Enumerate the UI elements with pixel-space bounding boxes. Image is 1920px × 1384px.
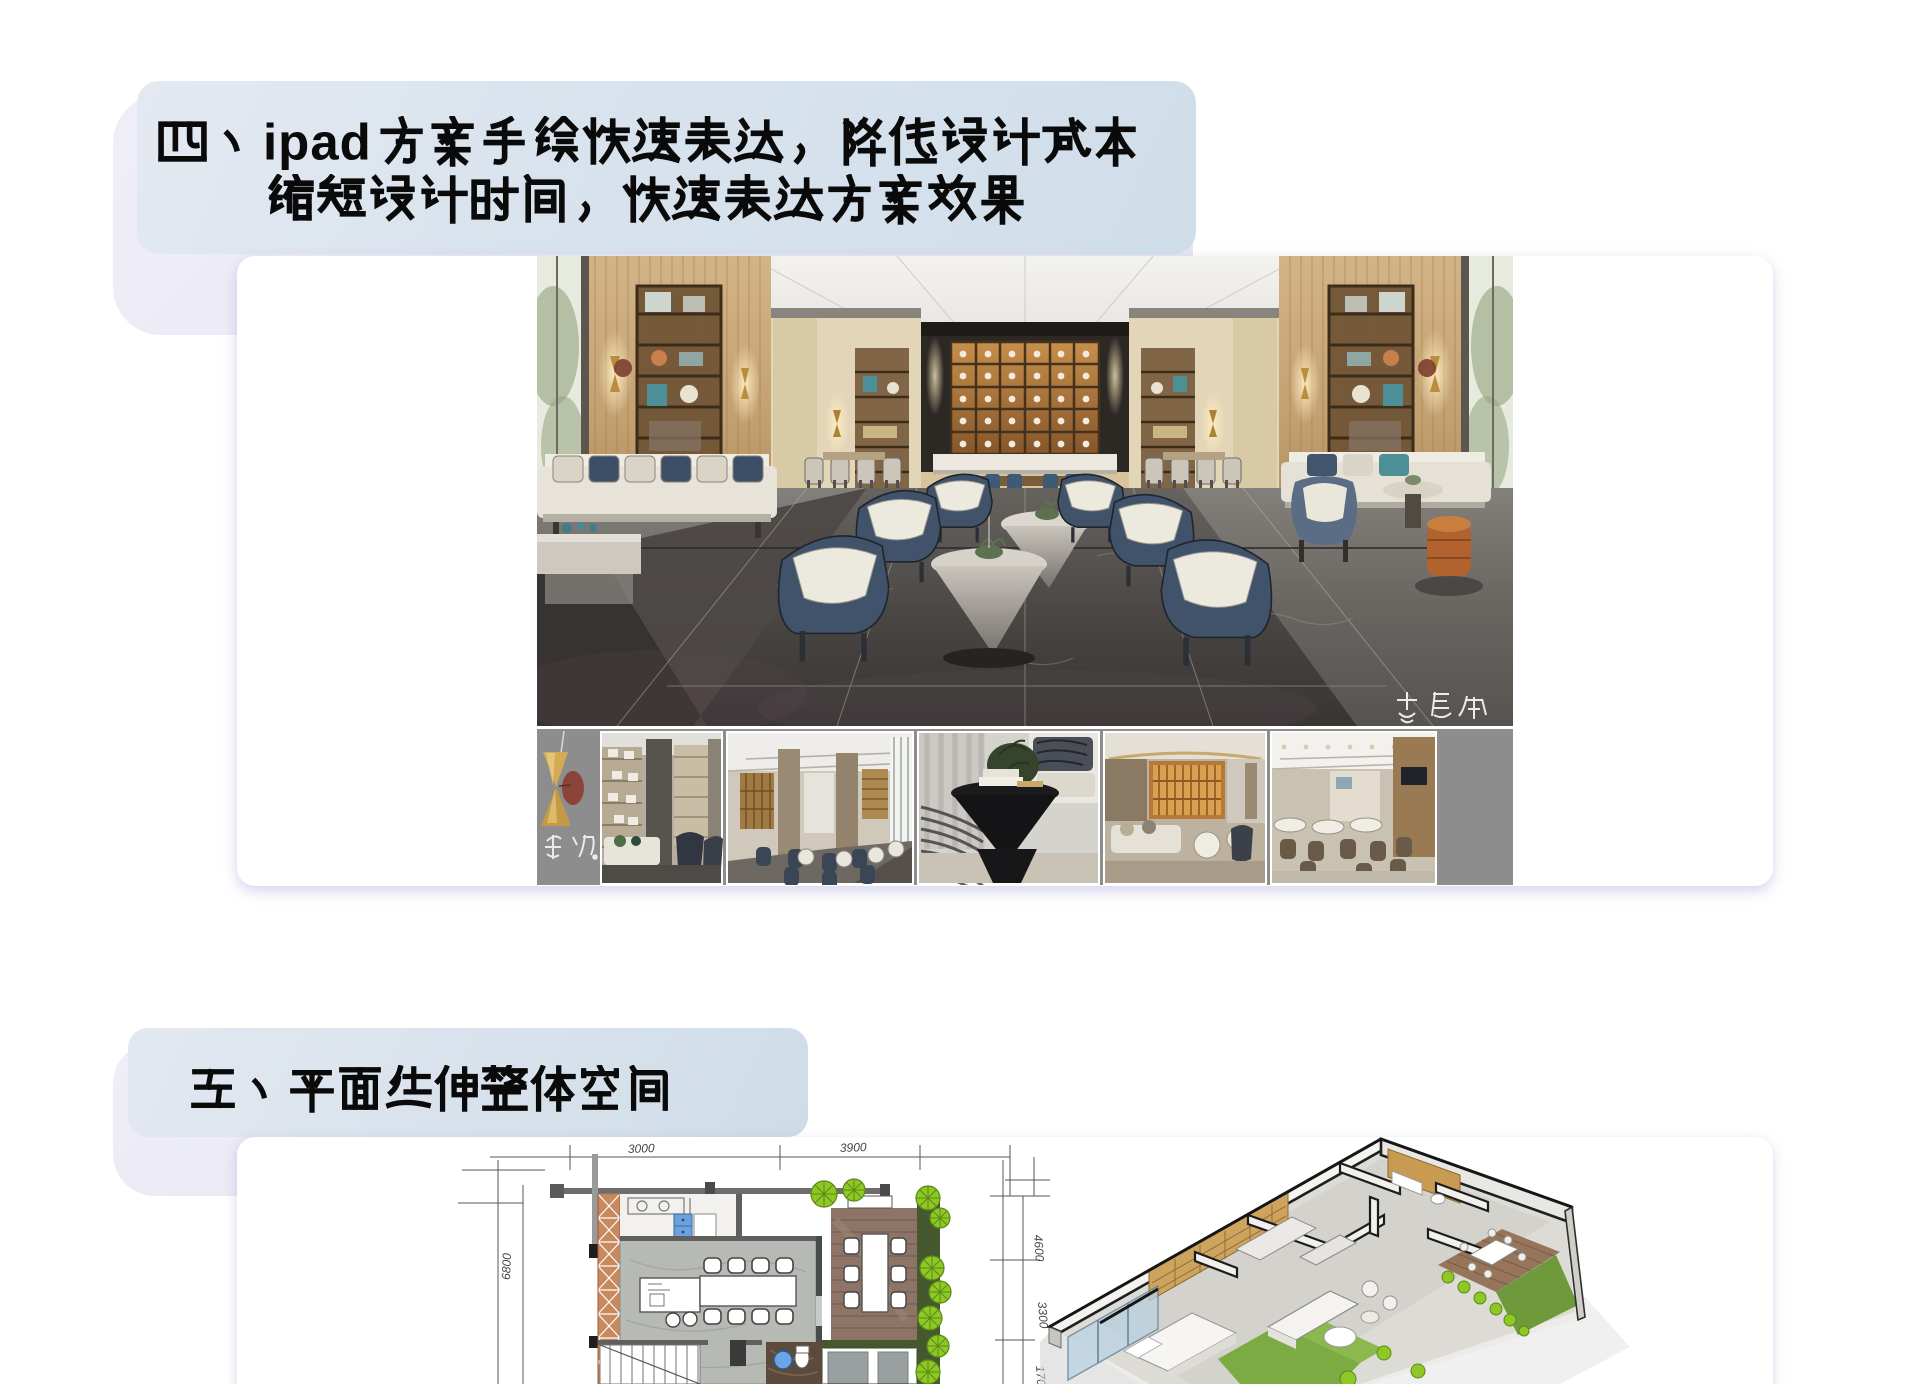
svg-text:ipad: ipad [263,116,372,170]
svg-text:6800: 6800 [499,1253,514,1280]
svg-text:3900: 3900 [840,1140,867,1155]
svg-text:3000: 3000 [628,1141,655,1156]
